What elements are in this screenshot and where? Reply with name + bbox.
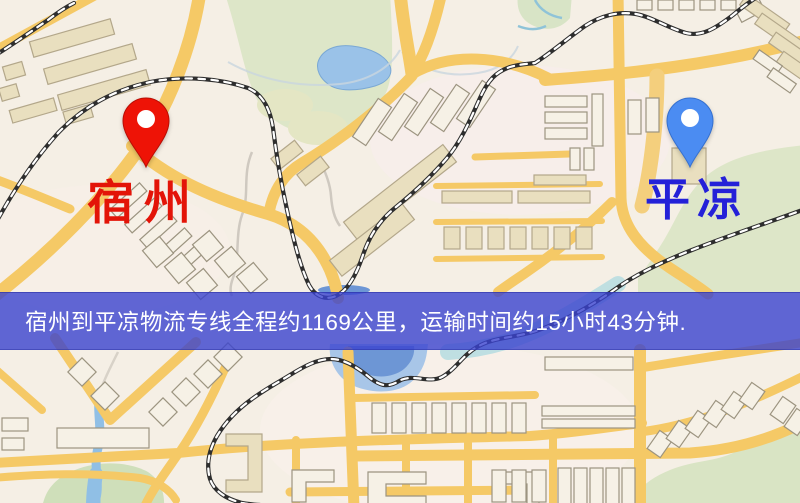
map-canvas[interactable] [0, 0, 800, 503]
route-info-banner: 宿州到平凉物流专线全程约1169公里，运输时间约15小时43分钟. [0, 292, 800, 350]
route-info-text: 宿州到平凉物流专线全程约1169公里，运输时间约15小时43分钟. [0, 305, 686, 337]
map-screenshot: 宿州 平凉 宿州到平凉物流专线全程约1169公里，运输时间约15小时43分钟. [0, 0, 800, 503]
origin-pin-icon[interactable] [116, 95, 176, 173]
origin-city-label: 宿州 [87, 181, 201, 228]
destination-city-label: 平凉 [645, 178, 749, 223]
destination-pin-icon[interactable] [660, 95, 720, 173]
